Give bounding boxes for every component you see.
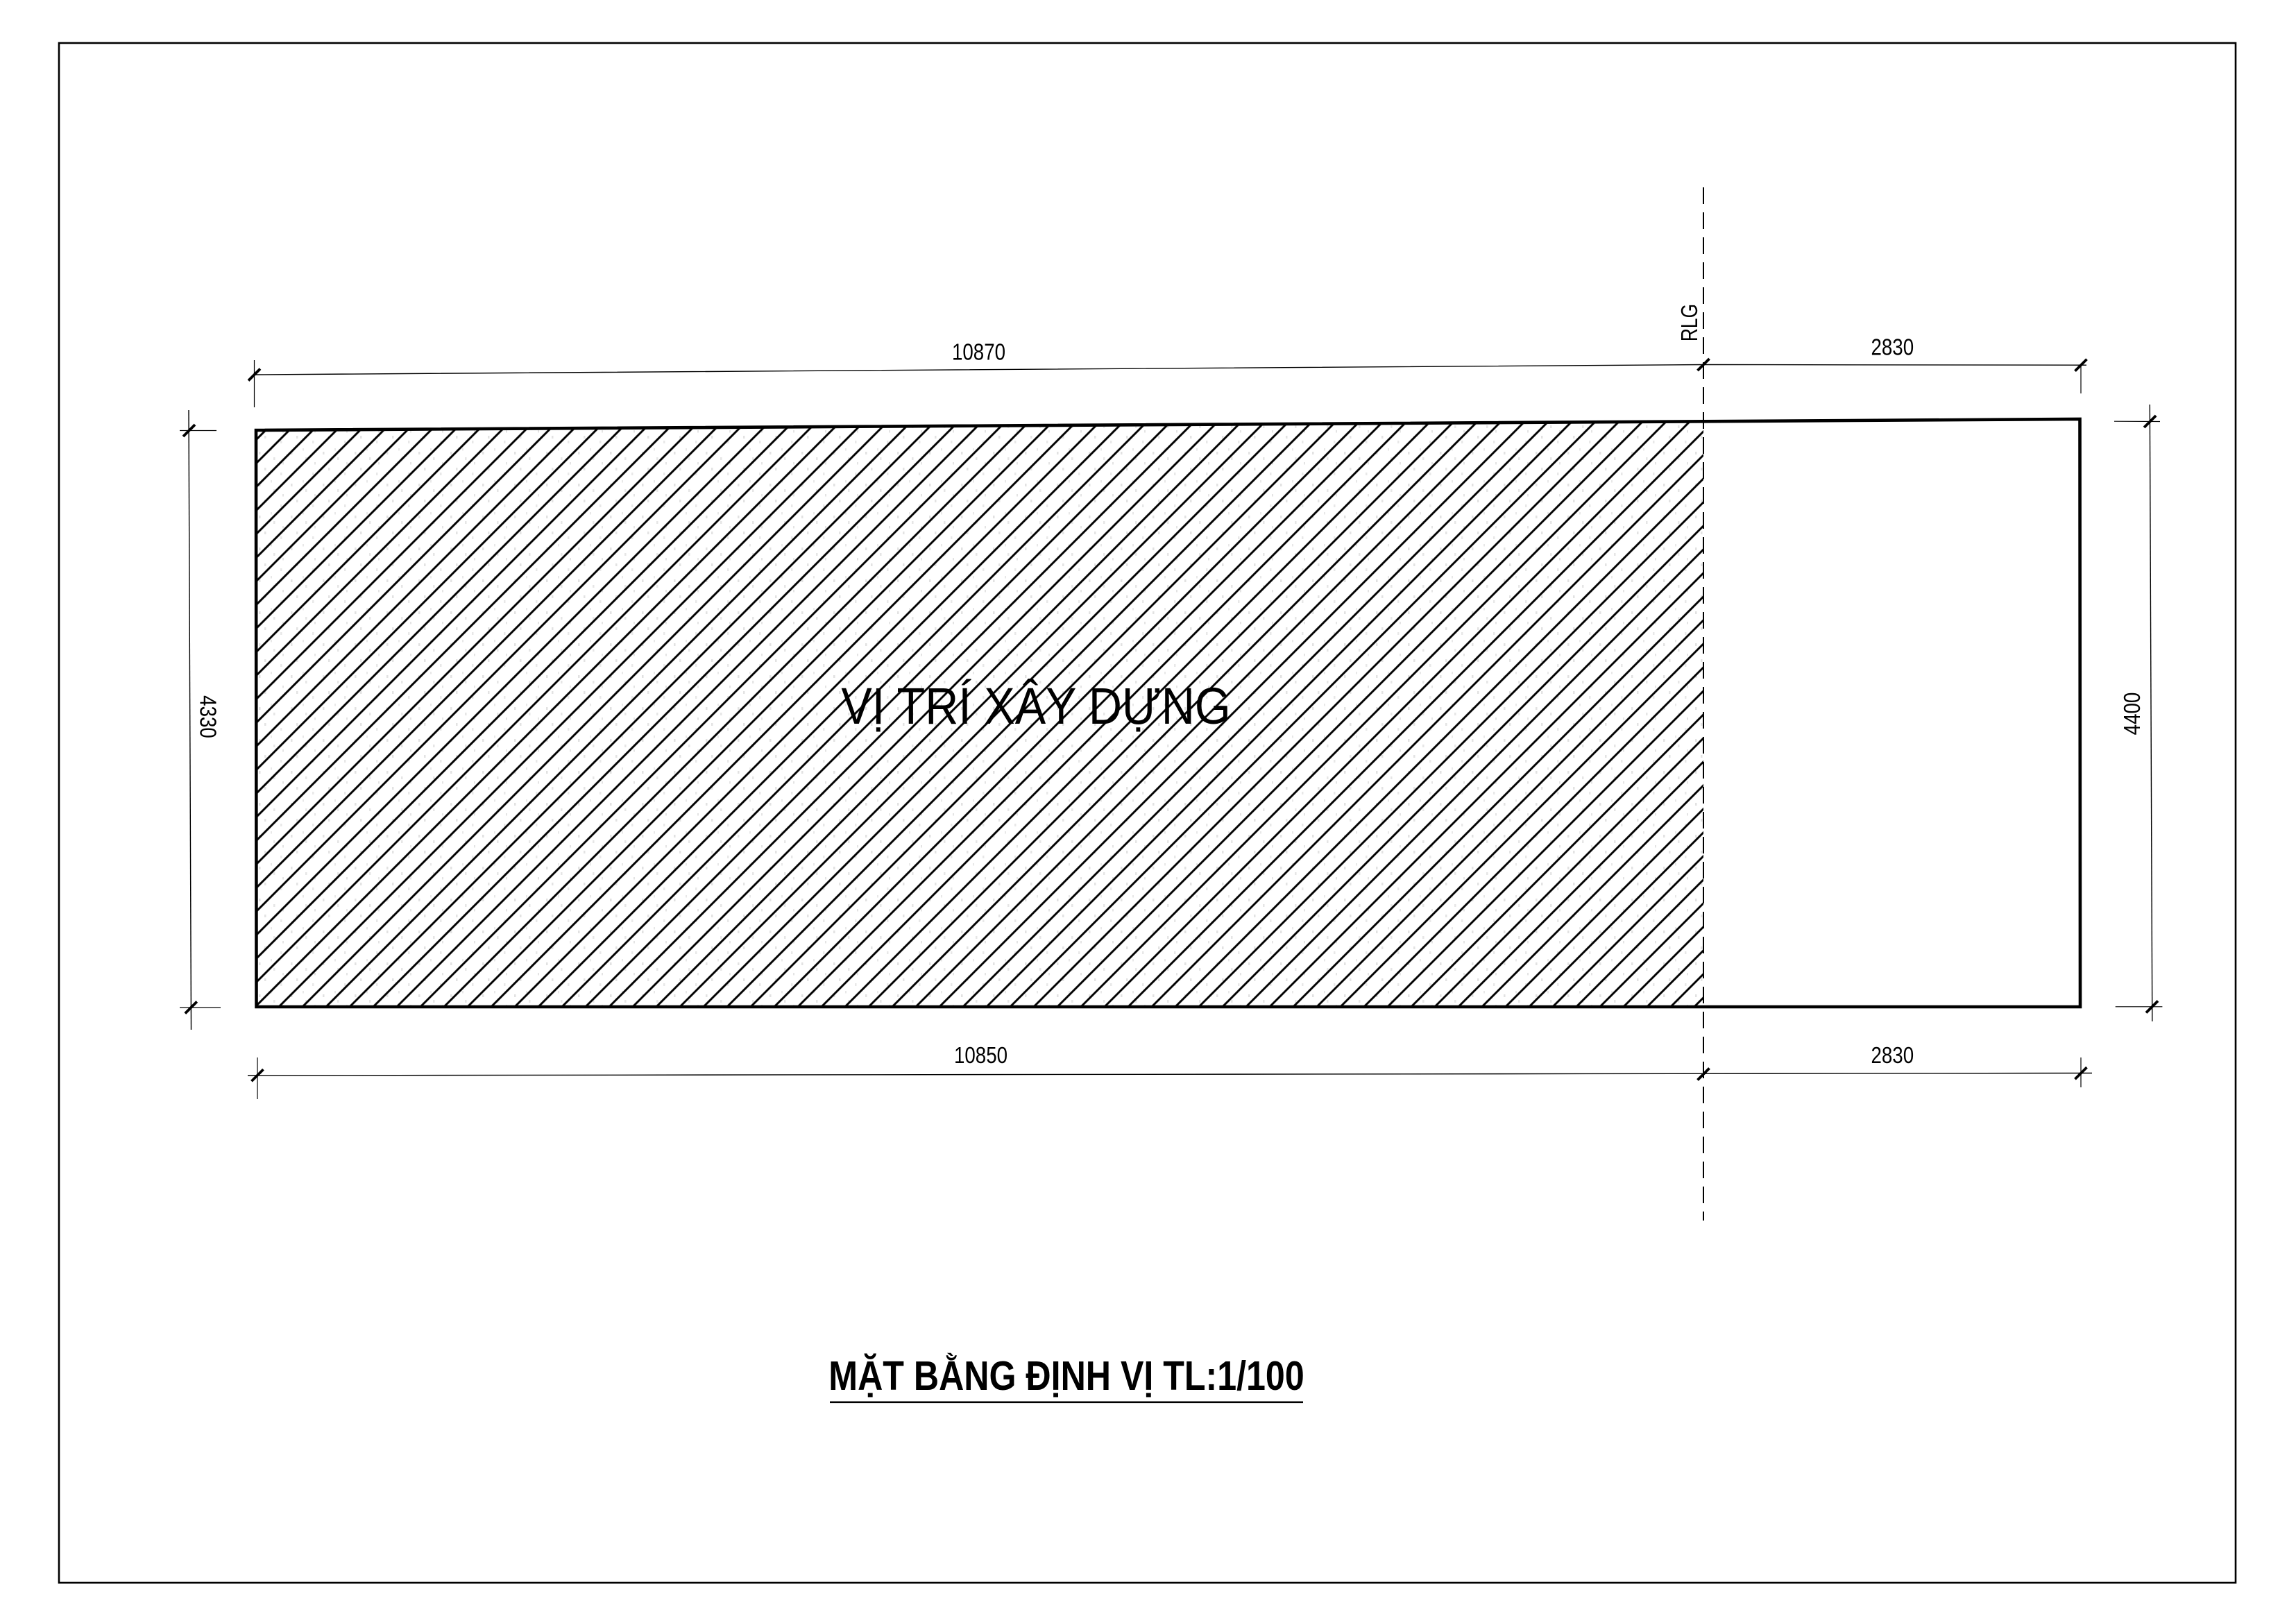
svg-text:RLG: RLG	[1677, 304, 1702, 341]
svg-text:2830: 2830	[1871, 1043, 1914, 1069]
svg-text:4400: 4400	[2120, 692, 2145, 736]
svg-text:VỊ TRÍ XÂY DỰNG: VỊ TRÍ XÂY DỰNG	[841, 677, 1230, 735]
svg-text:MẶT BẰNG ĐỊNH VỊ TL:1/100: MẶT BẰNG ĐỊNH VỊ TL:1/100	[828, 1352, 1304, 1399]
svg-text:10870: 10870	[952, 339, 1005, 365]
svg-text:4330: 4330	[195, 695, 221, 738]
svg-text:10850: 10850	[954, 1043, 1007, 1069]
svg-text:2830: 2830	[1871, 334, 1914, 360]
